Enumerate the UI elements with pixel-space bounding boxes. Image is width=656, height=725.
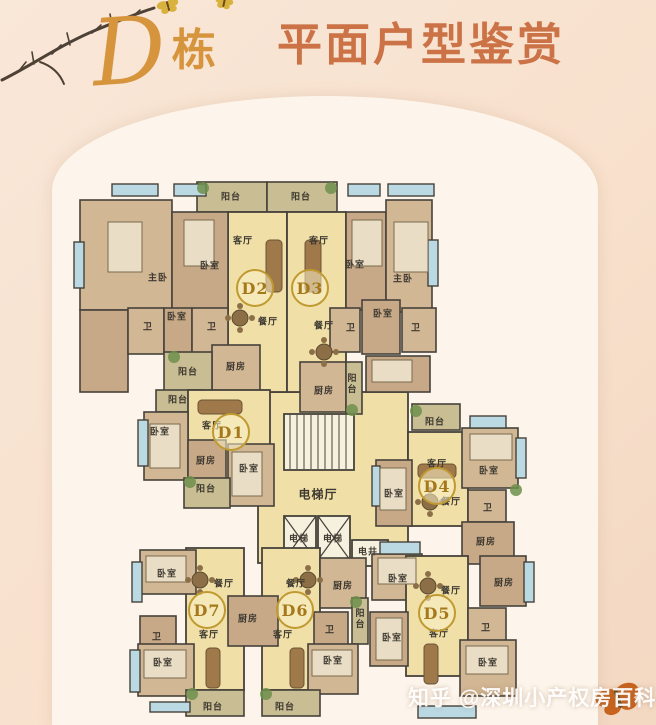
floor-plan-svg [0,0,656,725]
poster: 阳台阳台客厅客厅主卧卧室卧室主卧卧室卫卫卫卫卧室餐厅餐厅厨房阳台厨房阳台阳台客厅… [0,0,656,725]
building-label: D栋 [92,6,216,98]
building-suffix: 栋 [172,14,216,78]
building-letter: D [89,4,169,101]
page-title: 平面户型鉴赏 [277,8,565,73]
watermark: 知乎 @深圳小产权房百科 [408,682,656,712]
butterfly-icon [214,0,234,10]
